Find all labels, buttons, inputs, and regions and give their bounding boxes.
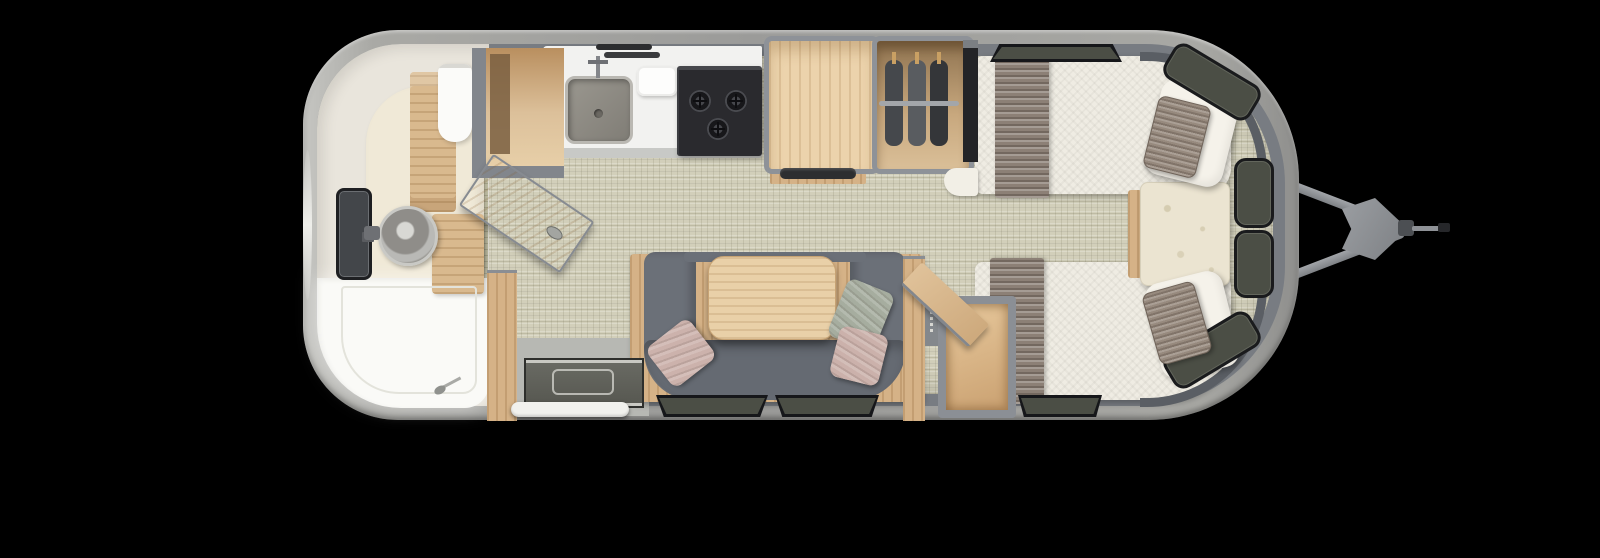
- window-dinette-left: [656, 395, 768, 417]
- window-below-curbside-bed: [1018, 395, 1102, 417]
- kitchen-faucet-icon: [588, 56, 608, 78]
- vanity-lower-cabinet: [432, 214, 484, 294]
- front-window-mid-lower: [1234, 230, 1274, 298]
- towel-bar-2: [604, 52, 660, 58]
- door-handle: [544, 223, 565, 242]
- bed-foot-trim: [944, 168, 978, 196]
- bed-runner-streetside: [995, 54, 1049, 198]
- bathroom-faucet-icon: [364, 226, 380, 240]
- closet-shelf-recess: [490, 54, 510, 154]
- refrigerator-vent: [780, 168, 856, 179]
- floor-plan-canvas: [0, 0, 1600, 558]
- refrigerator-cabinet: [764, 36, 880, 174]
- bathroom-sink: [378, 206, 438, 266]
- cooktop: [677, 66, 762, 156]
- cutting-board: [637, 66, 677, 96]
- burner-icon: [725, 90, 747, 112]
- hitch-jack-handle: [1438, 223, 1450, 232]
- shell-highlight: [303, 150, 312, 300]
- burner-icon: [689, 90, 711, 112]
- wardrobe-rod: [879, 101, 959, 106]
- dinette-table: [708, 256, 836, 340]
- closet-cabinet: [472, 48, 564, 178]
- front-window-mid-upper: [1234, 158, 1274, 228]
- towel-bar: [596, 44, 652, 50]
- entry-floor-grate: [524, 358, 644, 408]
- entry-step: [511, 402, 629, 417]
- toilet: [438, 64, 472, 142]
- kitchen-sink: [565, 76, 633, 144]
- burner-icon: [707, 118, 729, 140]
- window-above-streetside-bed: [990, 44, 1122, 62]
- tv-panel: [963, 40, 978, 162]
- entry-partition-wall: [487, 270, 517, 421]
- window-dinette-right: [775, 395, 879, 417]
- shower-head-icon: [434, 372, 464, 396]
